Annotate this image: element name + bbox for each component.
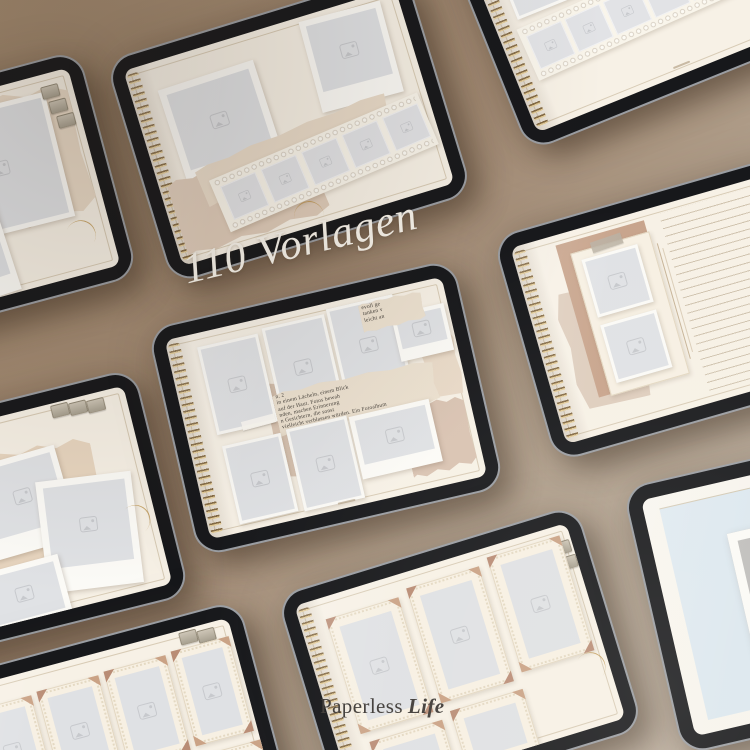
product-showcase: n. 2 in einem Lächeln, einem Blick auf d…: [0, 0, 750, 750]
photo-area: [500, 549, 580, 659]
film-frame: [301, 138, 350, 186]
image-icon: [319, 155, 333, 168]
journal-page: [0, 386, 172, 653]
photo-area: [0, 706, 45, 750]
tablet-center: n. 2 in einem Lächeln, einem Blick auf d…: [147, 259, 506, 558]
journal-page: n. 2 in einem Lächeln, einem Blick auf d…: [165, 277, 488, 540]
image-icon: [227, 375, 248, 394]
photo-corner: [519, 659, 533, 673]
photo-placeholder: [600, 309, 672, 383]
tablet-bottom-right-blue: [622, 407, 750, 750]
image-icon: [449, 625, 471, 645]
film-frame: [261, 155, 310, 203]
washi-clasp: [86, 397, 107, 414]
tablet-top-right: [442, 0, 750, 152]
photo-corner: [549, 535, 563, 549]
image-icon: [2, 741, 23, 750]
photo-corner: [218, 636, 231, 649]
photo-corner: [155, 655, 168, 668]
image-icon: [136, 701, 157, 720]
journal-page: [0, 618, 281, 750]
image-icon: [339, 40, 360, 59]
image-icon: [12, 487, 33, 506]
photo-corner: [326, 616, 340, 630]
photo-corner: [432, 720, 446, 734]
polaroid-frame: [298, 0, 403, 113]
image-icon: [582, 22, 596, 35]
image-icon: [14, 584, 35, 603]
image-icon: [626, 336, 647, 355]
image-icon: [620, 4, 634, 17]
brand-name-italic: Life: [408, 694, 445, 718]
image-icon: [411, 319, 432, 338]
photo-corner: [177, 739, 190, 750]
blue-page-area: [659, 441, 750, 720]
gold-vein: [61, 215, 101, 256]
photo-corner: [358, 720, 372, 734]
photo-corner: [468, 566, 482, 580]
film-frame: [342, 120, 391, 168]
image-icon: [607, 271, 628, 290]
journal-page: [641, 426, 750, 736]
photo-mat: [450, 689, 541, 750]
page-footer-mark: [673, 61, 690, 70]
image-icon: [293, 358, 314, 377]
photo-corner: [88, 675, 101, 688]
journal-page: [461, 0, 750, 133]
photo-area: [0, 561, 65, 626]
image-icon: [358, 335, 379, 354]
photo-corner: [450, 708, 464, 722]
photo-corner: [500, 671, 514, 685]
image-icon: [278, 172, 292, 185]
photo-corner: [487, 554, 501, 568]
image-icon: [530, 594, 552, 614]
photo-corner: [369, 739, 383, 750]
image-icon: [315, 454, 336, 473]
photo-area: [306, 8, 393, 92]
image-icon: [369, 656, 391, 676]
photo-corner: [388, 597, 402, 611]
brand-logo: PaperlessLife: [320, 694, 445, 719]
photo-corner: [406, 585, 420, 599]
image-icon: [250, 469, 271, 488]
photo-corner: [250, 739, 263, 750]
image-icon: [384, 425, 405, 444]
photo-area: [464, 703, 528, 750]
tablet-mid-right: [492, 151, 750, 462]
image-icon: [209, 110, 231, 130]
photo-corner: [512, 689, 526, 703]
photo-corner: [21, 695, 34, 708]
filmstrip: [517, 0, 750, 81]
image-icon: [544, 39, 558, 52]
image-icon: [359, 138, 373, 151]
photo-corner: [193, 733, 206, 746]
photo-area: [182, 647, 243, 735]
image-icon: [0, 159, 11, 178]
photo-placeholder: [581, 244, 653, 318]
photo-corner: [240, 720, 253, 733]
image-icon: [202, 682, 223, 701]
photo-area: [115, 666, 180, 750]
film-frame: [220, 172, 269, 220]
image-icon: [79, 515, 99, 532]
photo-area: [47, 686, 112, 750]
image-icon: [238, 189, 252, 202]
photo-area: [383, 733, 446, 750]
journal-page: [0, 68, 121, 339]
journal-page: [510, 170, 750, 444]
image-icon: [400, 121, 414, 134]
film-frame: [382, 103, 431, 151]
photo-area: [355, 405, 435, 465]
photo-area: [420, 580, 500, 690]
brand-name-regular: Paperless: [320, 694, 403, 718]
image-icon: [69, 721, 90, 740]
